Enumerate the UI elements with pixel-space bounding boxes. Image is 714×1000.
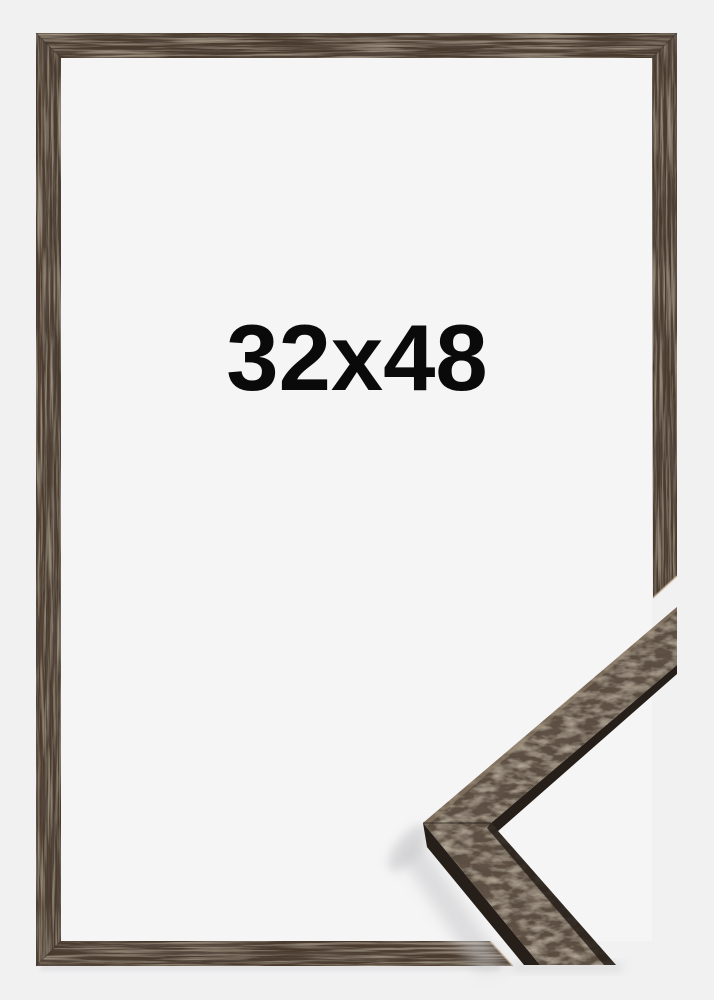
frame-opening xyxy=(61,58,652,941)
frame-border-left xyxy=(36,33,61,966)
frame-illustration xyxy=(0,0,714,1000)
frame-product-photo: 32x48 xyxy=(0,0,714,1000)
frame-border-bottom xyxy=(36,941,513,966)
size-label: 32x48 xyxy=(0,311,714,405)
frame-border-top xyxy=(36,33,677,58)
